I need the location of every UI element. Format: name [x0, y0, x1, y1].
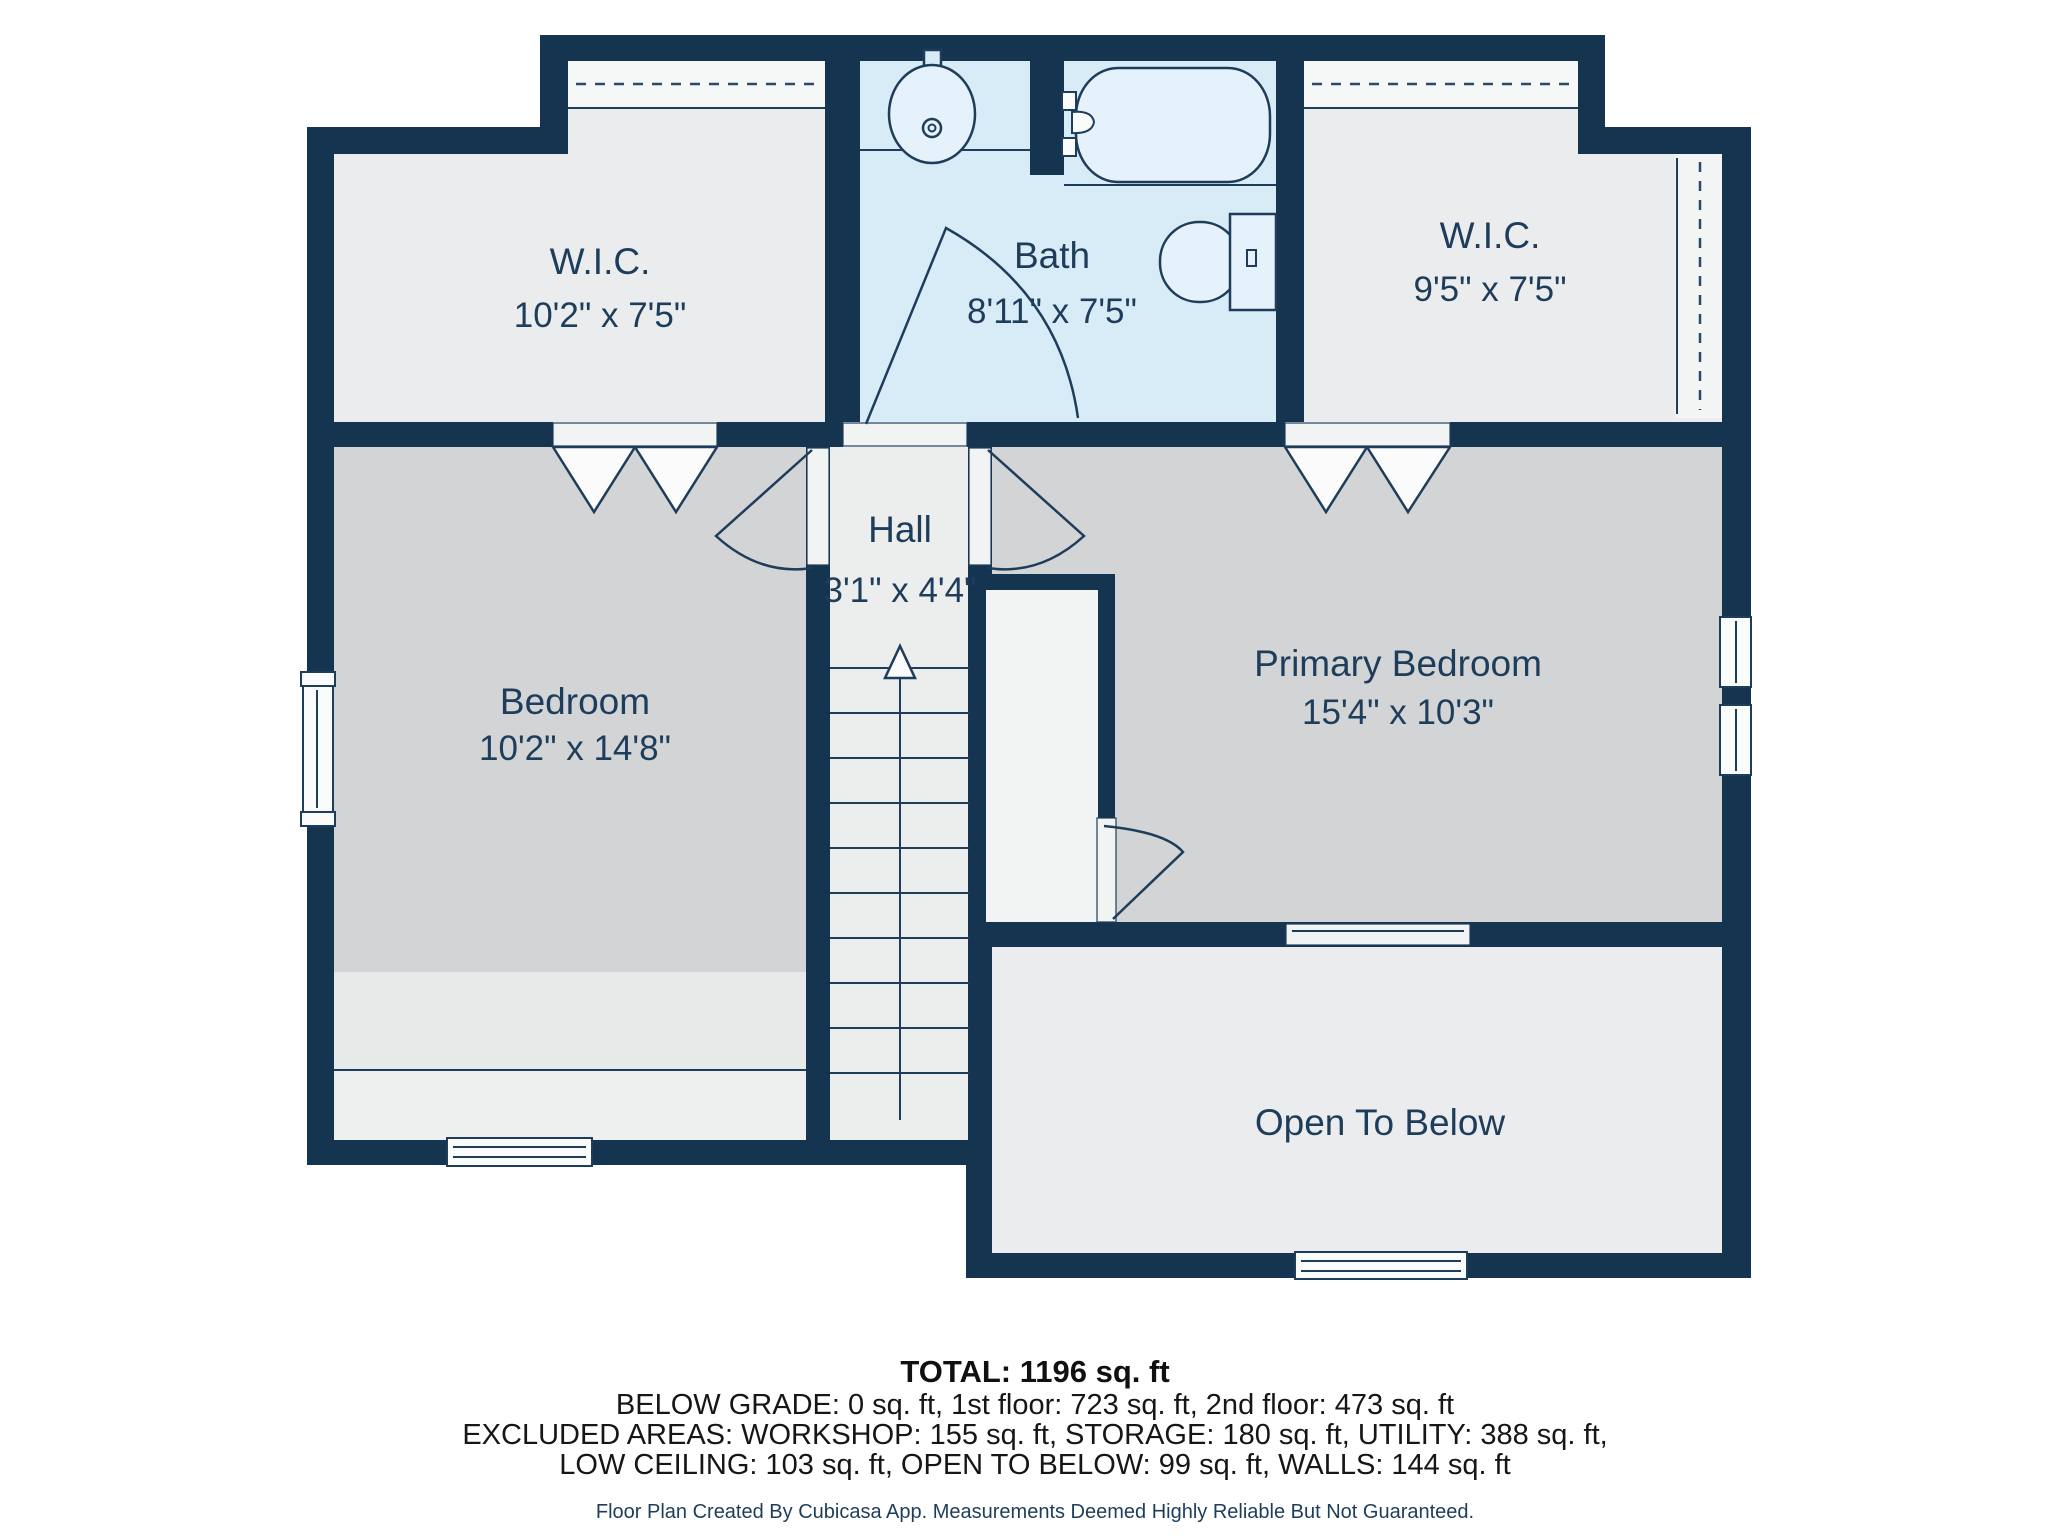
footer: TOTAL: 1196 sq. ft BELOW GRADE: 0 sq. ft…: [462, 1354, 1607, 1523]
bedroom-name: Bedroom: [500, 681, 650, 722]
knee-wall-window: [1286, 924, 1470, 945]
toilet-icon: [1160, 214, 1276, 310]
closet-door-opening: [1097, 818, 1116, 922]
wic-left-dims: 10'2" x 7'5": [514, 296, 687, 335]
bathtub-icon: [1062, 68, 1276, 185]
bedroom-edge-strip: [334, 1070, 808, 1140]
left-window-cap-top: [301, 672, 335, 686]
open-to-below-label: Open To Below: [1255, 1102, 1506, 1143]
left-outer-wall: [307, 127, 334, 1165]
wic-left-name: W.I.C.: [550, 241, 651, 282]
bedroom-door-opening: [807, 448, 829, 565]
primary-bedroom-name: Primary Bedroom: [1254, 643, 1542, 684]
open-to-below-floor: [992, 947, 1722, 1253]
closet-top-wall: [986, 574, 1115, 590]
divider-wall-c: [967, 422, 1285, 447]
bath-wicright-wall: [1276, 61, 1304, 422]
primary-closet-floor: [986, 590, 1098, 922]
wic-right-doorway: [1285, 423, 1450, 446]
top-left-step-wall: [307, 127, 568, 154]
wic-left-doorway: [553, 423, 717, 446]
footer-line3: EXCLUDED AREAS: WORKSHOP: 155 sq. ft, ST…: [462, 1419, 1607, 1451]
wic-right-closet-strip: [1675, 154, 1722, 418]
divider-wall-b: [717, 422, 843, 447]
primary-door-opening: [969, 448, 991, 565]
wic-right-name: W.I.C.: [1440, 215, 1541, 256]
bath-stub-wall: [1030, 61, 1064, 175]
hall-dims: 3'1" x 4'4": [823, 571, 976, 610]
bottom-left-outer-wall: [307, 1140, 992, 1165]
primary-bedroom-dims: 15'4" x 10'3": [1302, 693, 1494, 732]
hall-name: Hall: [868, 509, 932, 550]
floor-plan-canvas: W.I.C. 10'2" x 7'5" Bath 8'11" x 7'5" W.…: [0, 0, 2048, 1536]
bath-dims: 8'11" x 7'5": [967, 292, 1137, 331]
right-outer-wall: [1722, 127, 1751, 1278]
wic-right-dims: 9'5" x 7'5": [1413, 270, 1566, 309]
left-window-cap-bottom: [301, 812, 335, 826]
bedroom-low-ceiling-strip: [334, 972, 808, 1070]
bedroom-bottom-window: [447, 1138, 592, 1166]
wicleft-bath-wall: [825, 61, 860, 422]
bath-doorway: [843, 423, 967, 446]
footer-line4: LOW CEILING: 103 sq. ft, OPEN TO BELOW: …: [559, 1449, 1510, 1481]
open-below-bottom-window: [1295, 1252, 1467, 1279]
bedroom-dims: 10'2" x 14'8": [479, 729, 671, 768]
divider-wall-a: [334, 422, 553, 447]
footer-disclaimer: Floor Plan Created By Cubicasa App. Meas…: [596, 1501, 1474, 1523]
footer-total: TOTAL: 1196 sq. ft: [900, 1354, 1169, 1389]
floor-plan-page: W.I.C. 10'2" x 7'5" Bath 8'11" x 7'5" W.…: [0, 0, 2048, 1536]
wic-right-closet-shelf: [1304, 61, 1578, 108]
divider-wall-d: [1450, 422, 1722, 447]
bath-name: Bath: [1014, 235, 1090, 276]
footer-line2: BELOW GRADE: 0 sq. ft, 1st floor: 723 sq…: [616, 1389, 1454, 1421]
top-wall: [540, 35, 1605, 61]
